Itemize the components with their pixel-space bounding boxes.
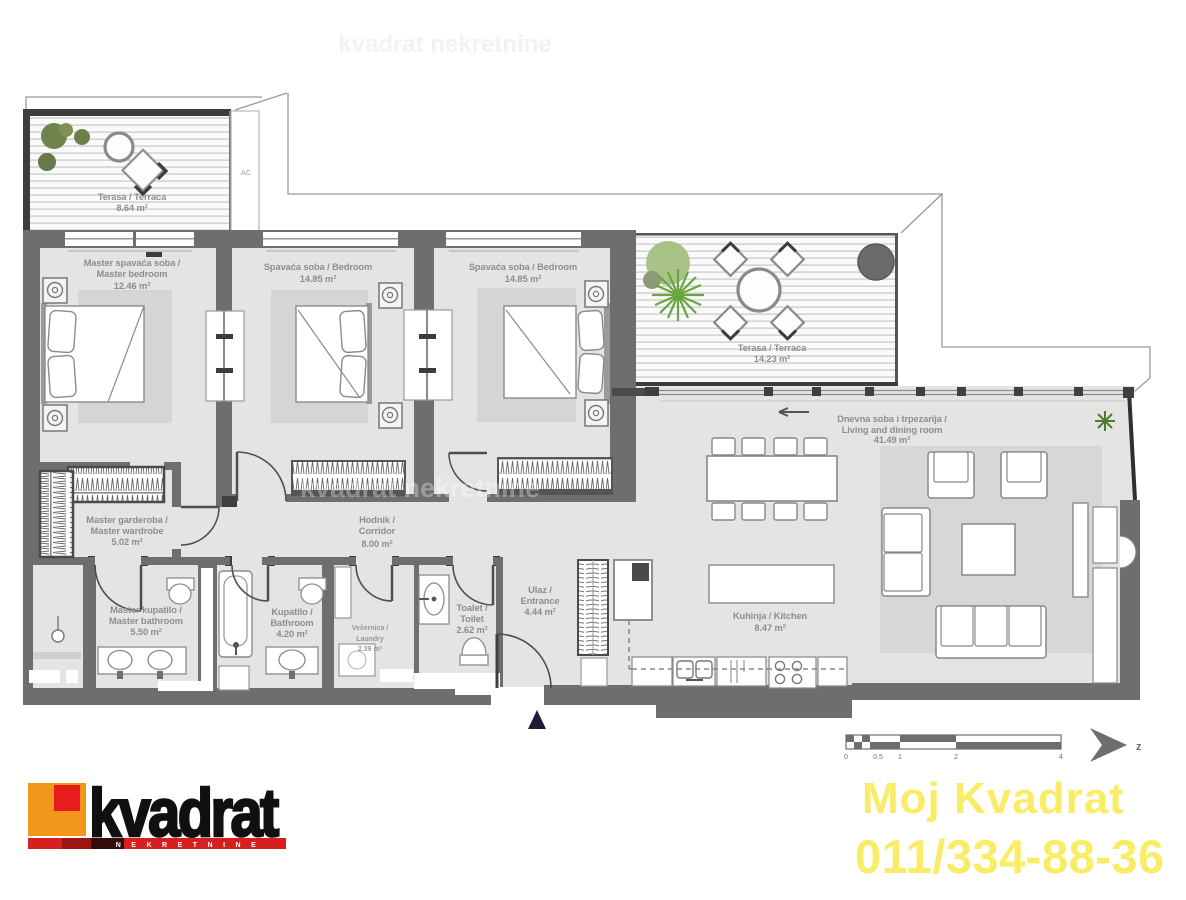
svg-text:0: 0	[844, 754, 848, 761]
svg-text:Corridor: Corridor	[359, 526, 396, 536]
svg-text:Master kupatilo /: Master kupatilo /	[110, 605, 182, 615]
svg-text:41.49 m²: 41.49 m²	[874, 435, 910, 445]
svg-text:14.85 m²: 14.85 m²	[505, 274, 541, 284]
svg-text:14.23 m²: 14.23 m²	[754, 354, 790, 364]
svg-text:Spavaća soba / Bedroom: Spavaća soba / Bedroom	[469, 262, 577, 272]
svg-text:Master bathroom: Master bathroom	[109, 616, 183, 626]
svg-text:Terasa / Terraca: Terasa / Terraca	[98, 192, 167, 202]
svg-text:8.64 m²: 8.64 m²	[116, 203, 147, 213]
svg-text:4.44 m²: 4.44 m²	[524, 607, 555, 617]
svg-text:Hodnik /: Hodnik /	[359, 515, 395, 525]
svg-text:4: 4	[1059, 754, 1063, 761]
svg-text:Terasa / Terraca: Terasa / Terraca	[738, 343, 807, 353]
svg-text:Ulaz /: Ulaz /	[528, 585, 552, 595]
svg-text:Toilet: Toilet	[460, 614, 484, 624]
svg-text:Bathroom: Bathroom	[270, 618, 313, 628]
svg-text:Kupatilo /: Kupatilo /	[271, 607, 313, 617]
svg-text:12.46 m²: 12.46 m²	[114, 281, 150, 291]
svg-text:Toalet /: Toalet /	[456, 603, 488, 613]
svg-text:8.00 m²: 8.00 m²	[361, 539, 392, 549]
svg-text:z: z	[1136, 741, 1142, 753]
svg-text:Master spavaća soba /: Master spavaća soba /	[84, 258, 181, 268]
svg-text:2.39 m²: 2.39 m²	[358, 646, 383, 653]
svg-text:14.85 m²: 14.85 m²	[300, 274, 336, 284]
svg-text:Entrance: Entrance	[521, 596, 560, 606]
svg-text:Master wardrobe: Master wardrobe	[91, 526, 164, 536]
svg-text:Kuhinja / Kitchen: Kuhinja / Kitchen	[733, 611, 808, 621]
svg-text:0.5: 0.5	[873, 754, 883, 761]
svg-text:AC: AC	[241, 168, 252, 177]
svg-text:2.62 m²: 2.62 m²	[456, 625, 487, 635]
svg-text:Master garderoba /: Master garderoba /	[86, 515, 168, 525]
svg-text:Laundry: Laundry	[356, 636, 384, 643]
svg-text:1: 1	[898, 754, 902, 761]
svg-text:5.50 m²: 5.50 m²	[130, 627, 161, 637]
svg-text:kvadrat nekretnine: kvadrat nekretnine	[300, 473, 540, 503]
svg-text:011/334-88-36: 011/334-88-36	[855, 830, 1165, 883]
svg-text:kvadrat nekretnine: kvadrat nekretnine	[338, 31, 551, 58]
svg-text:NEKRETNINE: NEKRETNINE	[116, 842, 267, 849]
svg-text:Master bedroom: Master bedroom	[97, 269, 168, 279]
svg-text:Living and dining room: Living and dining room	[842, 425, 943, 435]
svg-text:5.02 m²: 5.02 m²	[111, 537, 142, 547]
svg-text:2: 2	[954, 754, 958, 761]
svg-text:Spavaća soba / Bedroom: Spavaća soba / Bedroom	[264, 262, 372, 272]
svg-text:4.20 m²: 4.20 m²	[276, 629, 307, 639]
svg-text:Moj Kvadrat: Moj Kvadrat	[862, 774, 1125, 823]
svg-text:Dnevna soba i trpezarija /: Dnevna soba i trpezarija /	[837, 414, 947, 424]
svg-text:Vešernica /: Vešernica /	[352, 625, 389, 632]
svg-text:8.47 m²: 8.47 m²	[754, 623, 785, 633]
